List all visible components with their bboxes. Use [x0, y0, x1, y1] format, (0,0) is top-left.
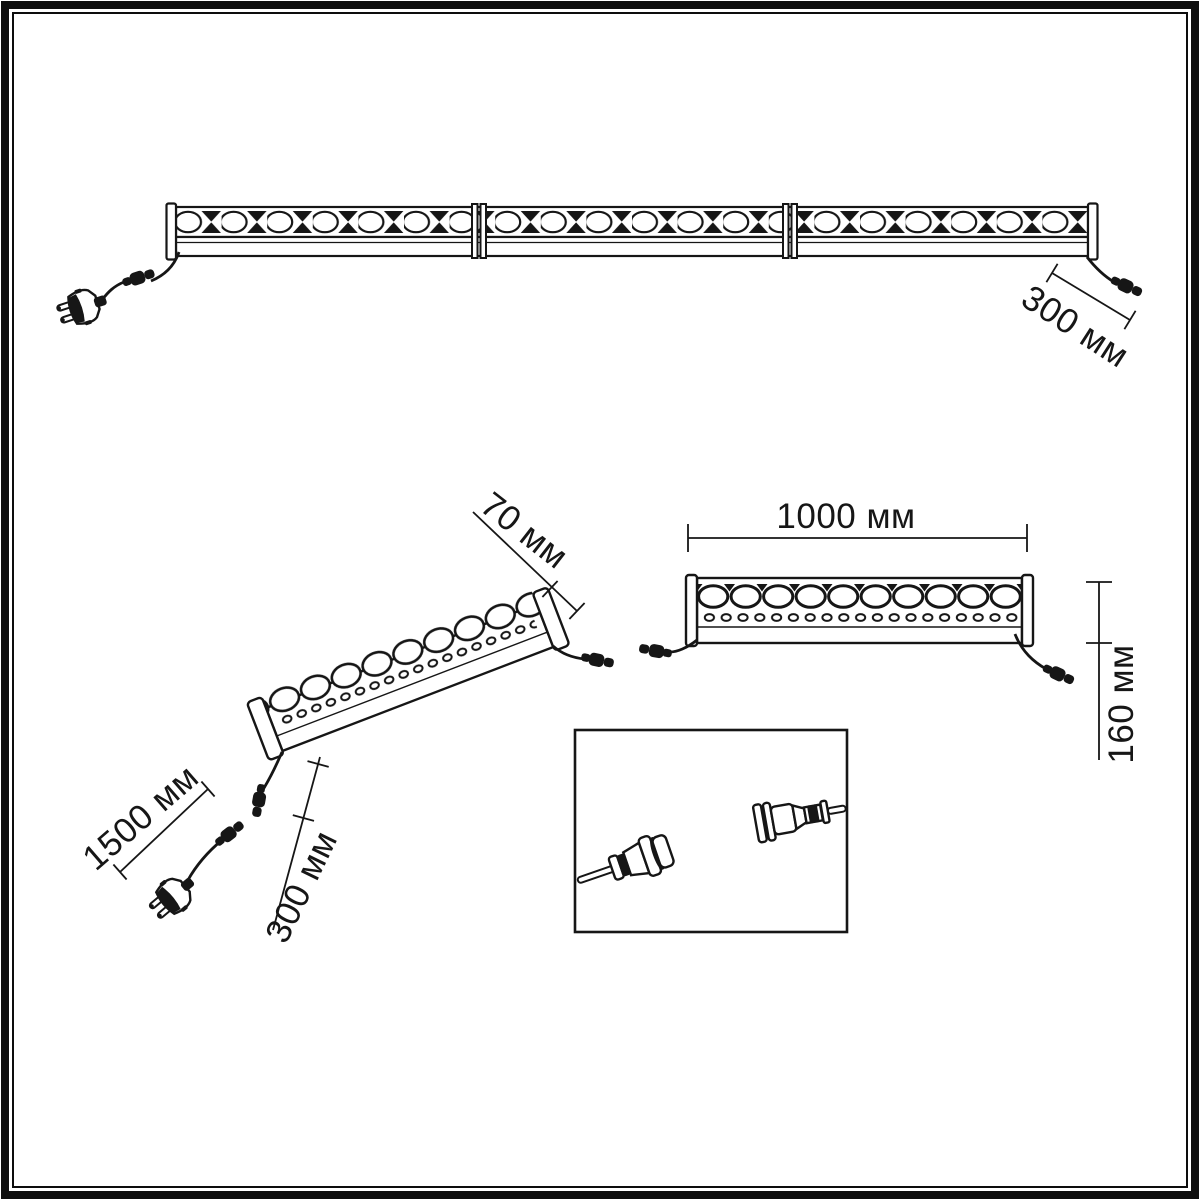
outer-frame — [1, 1, 1199, 1199]
inner-frame — [12, 12, 1188, 1188]
diagram-canvas: 300 мм 70 мм 1000 мм 160 мм 1500 мм 300 … — [0, 0, 1200, 1200]
